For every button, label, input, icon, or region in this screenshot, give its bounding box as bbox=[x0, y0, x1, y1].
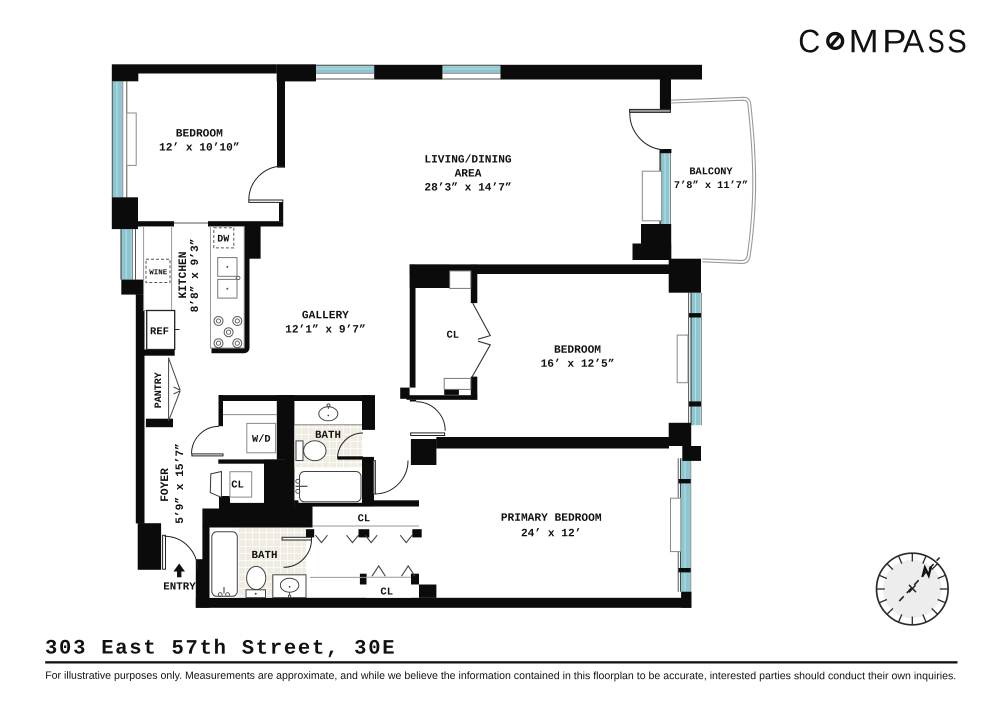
svg-text:KITCHEN: KITCHEN bbox=[178, 252, 190, 299]
svg-text:24’ x 12’: 24’ x 12’ bbox=[521, 528, 581, 540]
svg-text:12’1” x 9’7”: 12’1” x 9’7” bbox=[285, 324, 366, 336]
svg-text:CL: CL bbox=[446, 330, 459, 342]
svg-text:BATH: BATH bbox=[252, 550, 278, 562]
svg-text:S: S bbox=[947, 23, 967, 59]
svg-text:DW: DW bbox=[217, 234, 229, 245]
svg-text:7’8” x 11’7”: 7’8” x 11’7” bbox=[674, 180, 748, 192]
svg-text:BEDROOM: BEDROOM bbox=[176, 128, 223, 140]
svg-text:PRIMARY BEDROOM: PRIMARY BEDROOM bbox=[501, 513, 602, 525]
svg-text:C: C bbox=[798, 23, 820, 59]
svg-text:8’8” x 9’3”: 8’8” x 9’3” bbox=[190, 239, 202, 313]
svg-text:A: A bbox=[903, 23, 925, 59]
svg-text:W/D: W/D bbox=[252, 434, 271, 446]
svg-text:5’9” x 15’7”: 5’9” x 15’7” bbox=[175, 443, 187, 524]
svg-text:ENTRY: ENTRY bbox=[163, 581, 196, 593]
svg-text:REF: REF bbox=[150, 326, 169, 338]
svg-text:12’ x 10’10”: 12’ x 10’10” bbox=[159, 142, 240, 154]
svg-text:GALLERY: GALLERY bbox=[302, 310, 349, 322]
svg-text:CL: CL bbox=[380, 586, 393, 598]
svg-text:PANTRY: PANTRY bbox=[154, 372, 165, 408]
svg-text:BALCONY: BALCONY bbox=[689, 166, 733, 178]
svg-text:AREA: AREA bbox=[455, 168, 482, 180]
svg-text:CL: CL bbox=[358, 513, 371, 525]
svg-text:BATH: BATH bbox=[315, 430, 341, 442]
svg-text:For illustrative purposes only: For illustrative purposes only. Measurem… bbox=[45, 670, 956, 682]
svg-text:WINE: WINE bbox=[149, 269, 168, 277]
svg-text:S: S bbox=[928, 23, 945, 59]
svg-text:16’ x 12’5”: 16’ x 12’5” bbox=[541, 359, 615, 371]
svg-text:FOYER: FOYER bbox=[160, 468, 172, 502]
svg-text:CL: CL bbox=[231, 479, 244, 491]
svg-text:BEDROOM: BEDROOM bbox=[554, 345, 601, 357]
svg-text:303 East 57th Street, 30E: 303 East 57th Street, 30E bbox=[45, 638, 396, 661]
svg-text:LIVING/DINING: LIVING/DINING bbox=[424, 154, 512, 166]
svg-text:M: M bbox=[849, 23, 879, 59]
svg-text:28’3” x 14’7”: 28’3” x 14’7” bbox=[424, 182, 511, 194]
